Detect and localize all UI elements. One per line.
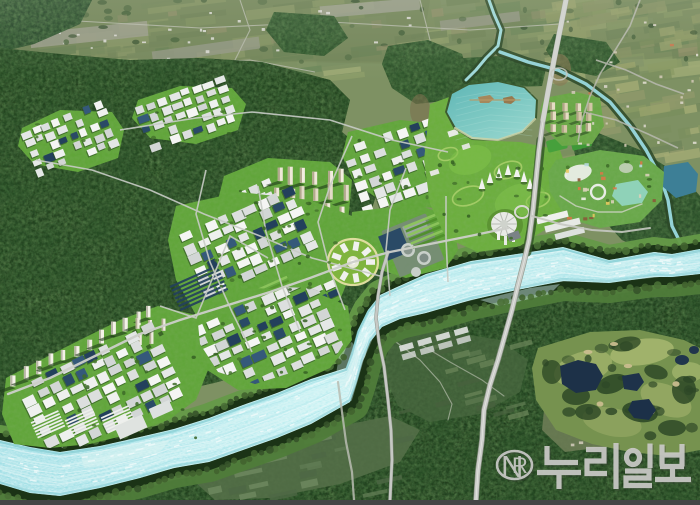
svg-text:R: R	[512, 453, 528, 478]
